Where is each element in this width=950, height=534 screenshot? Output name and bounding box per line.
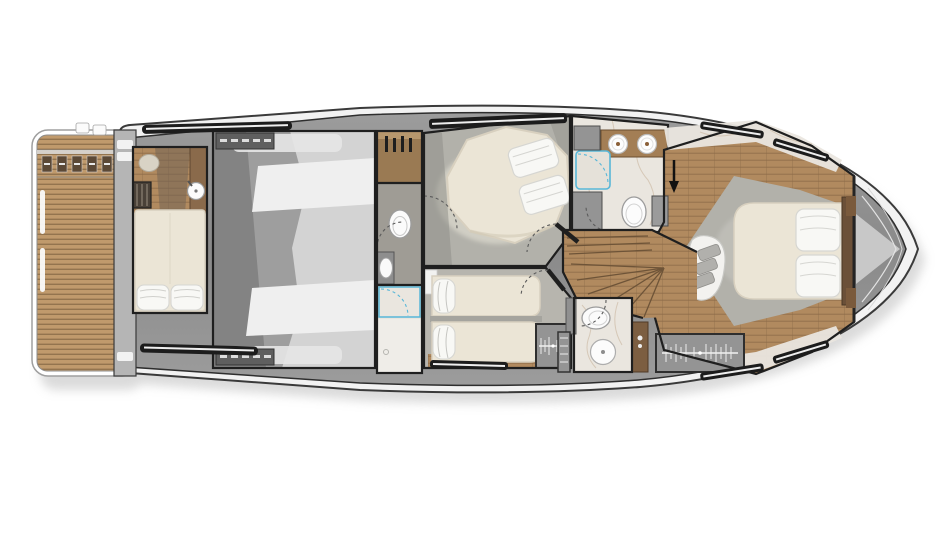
pillow: [796, 255, 840, 297]
engine-vent-grille: [216, 133, 274, 149]
guest-shower: [576, 151, 610, 189]
cleat: [76, 123, 89, 133]
corridor-sink: [377, 252, 394, 284]
transom-slot: [117, 152, 133, 161]
pillow: [433, 325, 455, 359]
pillow: [433, 279, 455, 313]
crew-cabinet: [190, 147, 207, 213]
vanity-counter: [601, 130, 668, 157]
vessel-sink: [609, 135, 628, 154]
toilet: [622, 197, 646, 227]
toilet: [389, 210, 411, 238]
crew-seat: [139, 155, 159, 172]
toilet: [582, 307, 610, 329]
bathroom-cabinet: [574, 126, 600, 150]
master-bed: [734, 197, 854, 305]
entry-cabinet: [652, 196, 668, 226]
twin-cabin: [424, 268, 571, 370]
twin-bed-lower: [432, 322, 540, 362]
crew-floor-shadow: [155, 147, 190, 213]
pillow: [796, 209, 840, 251]
vip-bed: [447, 127, 571, 243]
platform-edge-slot: [40, 190, 45, 234]
transom-slot: [117, 352, 133, 361]
bulkhead-post: [846, 288, 856, 308]
yacht-floor-plan: [0, 0, 950, 534]
vessel-sink: [638, 135, 657, 154]
engine-highlight-band: [246, 280, 375, 336]
platform-edge-slot: [40, 248, 45, 292]
round-sink: [591, 340, 616, 365]
hanging-locker: [377, 131, 422, 183]
crew-bed: [135, 210, 205, 311]
engine-highlight-band: [252, 158, 375, 212]
floor-plan-canvas: [0, 0, 950, 534]
vip-cabin: [424, 113, 571, 266]
twin-bed-gap: [430, 316, 542, 322]
corridor-shower: [377, 285, 422, 319]
cleat: [93, 125, 106, 135]
bathroom-cabinet: [572, 192, 602, 232]
engine-room: [213, 131, 375, 368]
transom-slot: [117, 140, 133, 149]
utility-corridor: [377, 131, 422, 373]
foyer-wardrobe: [558, 332, 570, 372]
crew-locker: [133, 182, 151, 208]
bulkhead-post: [846, 196, 856, 216]
crew-cabin: [133, 147, 207, 313]
dayhead-cabinet: [632, 322, 648, 372]
twin-bed-upper: [432, 276, 540, 316]
shower-tray: [377, 319, 422, 373]
